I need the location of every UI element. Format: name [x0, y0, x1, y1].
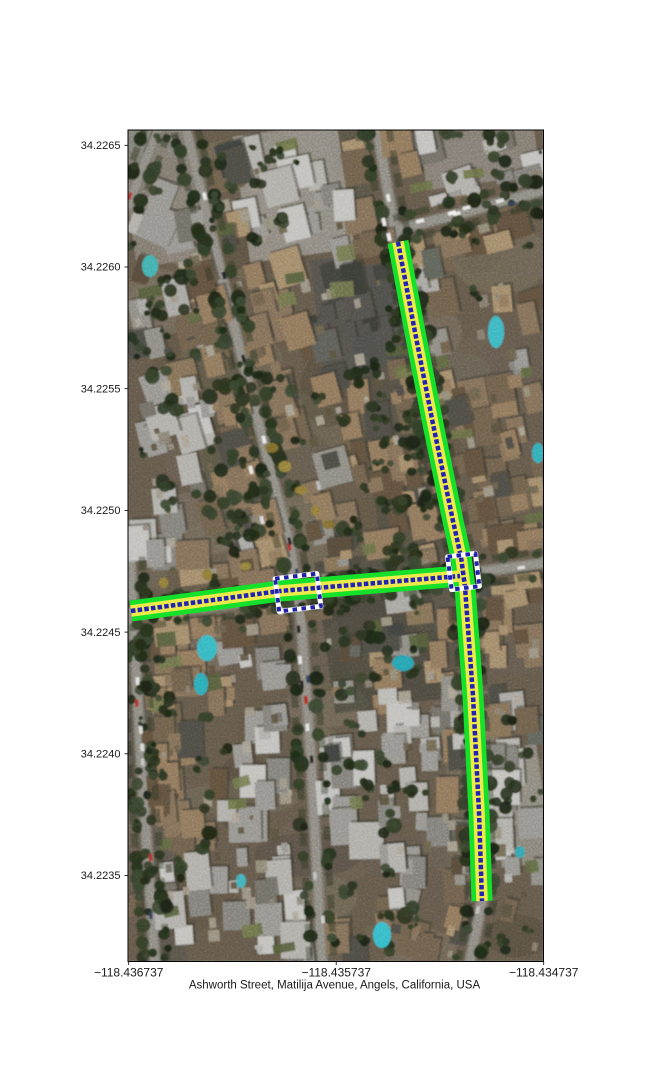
- svg-text:−118.434737: −118.434737: [509, 965, 579, 979]
- svg-text:34.2265: 34.2265: [81, 140, 121, 152]
- svg-text:−118.436737: −118.436737: [94, 965, 164, 979]
- svg-text:34.2245: 34.2245: [81, 627, 121, 639]
- svg-text:34.2235: 34.2235: [81, 870, 121, 882]
- svg-text:34.2255: 34.2255: [81, 383, 121, 395]
- svg-text:34.2260: 34.2260: [81, 262, 121, 274]
- svg-text:34.2250: 34.2250: [81, 505, 121, 517]
- svg-text:Ashworth Street, Matilija Aven: Ashworth Street, Matilija Avenue, Angels…: [189, 979, 481, 991]
- svg-text:−118.435737: −118.435737: [301, 965, 371, 979]
- svg-text:34.2240: 34.2240: [81, 749, 121, 761]
